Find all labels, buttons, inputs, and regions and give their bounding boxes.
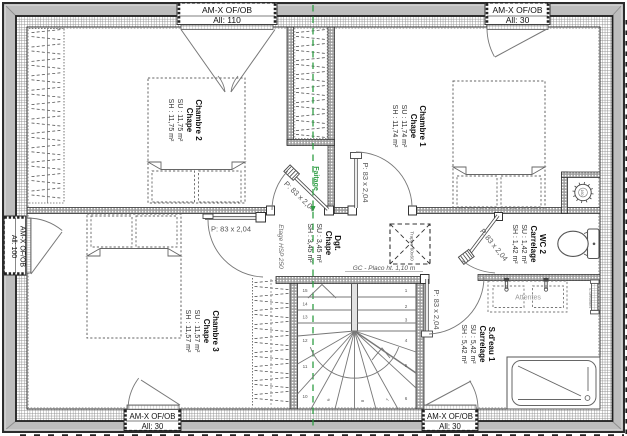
svg-text:Chambre 2: Chambre 2 (194, 99, 203, 141)
svg-text:12: 12 (302, 338, 308, 343)
svg-text:SH : 5,42 m²: SH : 5,42 m² (460, 324, 467, 364)
svg-text:AM-X OF/OB: AM-X OF/OB (19, 226, 26, 268)
svg-text:Carrelage: Carrelage (529, 226, 538, 263)
svg-text:All: 30: All: 30 (506, 15, 530, 25)
svg-text:S.Serviettes: S.Serviettes (588, 288, 592, 309)
svg-text:SU : 11,57 m²: SU : 11,57 m² (193, 310, 200, 353)
svg-text:WC 2: WC 2 (538, 234, 547, 255)
svg-text:13: 13 (302, 315, 308, 320)
svg-text:4: 4 (405, 338, 408, 343)
svg-text:P: 83 x 2,04: P: 83 x 2,04 (211, 225, 251, 234)
svg-text:GC - Placo ht. 1,10 m: GC - Placo ht. 1,10 m (353, 265, 416, 272)
svg-text:P: 83 x 2,04: P: 83 x 2,04 (361, 162, 370, 202)
svg-text:SU : 3,45 m²: SU : 3,45 m² (315, 223, 322, 263)
svg-text:Carrelage: Carrelage (478, 326, 487, 363)
svg-text:SU : 11,74 m²: SU : 11,74 m² (400, 105, 407, 148)
svg-text:Etage HSP 250: Etage HSP 250 (277, 224, 284, 269)
svg-text:AM-X OF/OB: AM-X OF/OB (427, 412, 473, 421)
svg-text:All: 30: All: 30 (142, 422, 164, 431)
svg-text:160: 160 (580, 190, 584, 196)
svg-text:14: 14 (302, 302, 308, 307)
svg-text:SH : 3,45 m²: SH : 3,45 m² (306, 223, 313, 263)
svg-text:Dgt.: Dgt. (333, 235, 342, 251)
svg-text:S.d'eau 1: S.d'eau 1 (487, 327, 496, 362)
svg-text:2: 2 (405, 304, 408, 309)
svg-text:SH : 11,75 m²: SH : 11,75 m² (167, 99, 174, 142)
svg-text:P: 83 x 2,04: P: 83 x 2,04 (432, 289, 441, 329)
svg-text:Chape: Chape (185, 108, 194, 133)
svg-text:SU : 5,42 m²: SU : 5,42 m² (469, 324, 476, 364)
svg-text:Faitage: Faitage (312, 166, 319, 191)
svg-text:AM-X OF/OB: AM-X OF/OB (202, 5, 252, 15)
svg-text:SU : 1,42 m²: SU : 1,42 m² (520, 224, 527, 264)
svg-text:Chape: Chape (409, 114, 418, 139)
svg-text:SU : 11,75 m²: SU : 11,75 m² (176, 99, 183, 142)
svg-text:SH : 11,57 m²: SH : 11,57 m² (184, 310, 191, 353)
svg-text:SH : 11,74 m²: SH : 11,74 m² (391, 105, 398, 148)
svg-text:All: 110: All: 110 (213, 15, 241, 25)
svg-text:SH : 1,42 m²: SH : 1,42 m² (511, 224, 518, 264)
svg-text:3: 3 (405, 318, 408, 323)
svg-text:Chambre 3: Chambre 3 (211, 310, 220, 352)
svg-text:Trappe 60x60: Trappe 60x60 (409, 231, 415, 261)
svg-text:1: 1 (405, 288, 408, 293)
svg-text:All: 100: All: 100 (10, 235, 17, 258)
svg-text:6: 6 (405, 396, 408, 401)
svg-text:11: 11 (303, 364, 308, 369)
svg-text:AM-X OF/OB: AM-X OF/OB (492, 5, 542, 15)
svg-text:Chambre 1: Chambre 1 (418, 105, 427, 147)
svg-text:Chape: Chape (202, 319, 211, 344)
svg-text:5: 5 (405, 363, 408, 368)
svg-text:15: 15 (302, 288, 308, 293)
svg-text:10: 10 (302, 394, 308, 399)
svg-text:All: 30: All: 30 (439, 422, 461, 431)
svg-text:Chape: Chape (324, 231, 333, 256)
svg-text:Attentes: Attentes (515, 295, 541, 302)
svg-text:AM-X OF/OB: AM-X OF/OB (130, 412, 176, 421)
